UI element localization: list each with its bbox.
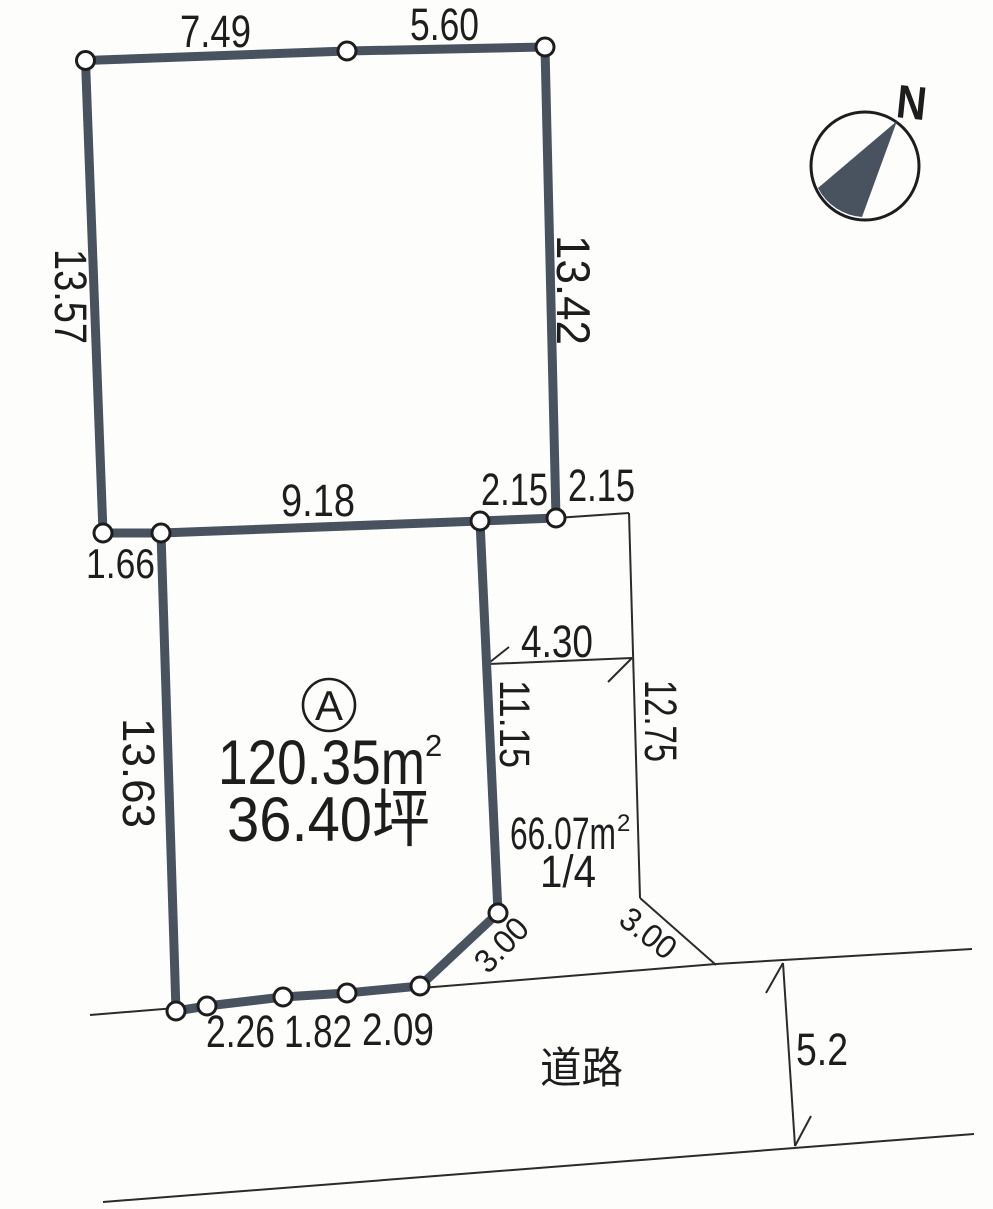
svg-text:1.82: 1.82 bbox=[284, 1006, 352, 1057]
svg-text:36.40坪: 36.40坪 bbox=[227, 785, 430, 855]
svg-text:13.57: 13.57 bbox=[45, 249, 96, 344]
svg-text:2: 2 bbox=[425, 728, 442, 763]
svg-text:2.15: 2.15 bbox=[481, 464, 548, 515]
svg-text:11.15: 11.15 bbox=[490, 680, 538, 768]
svg-text:5.60: 5.60 bbox=[410, 0, 479, 50]
svg-text:7.49: 7.49 bbox=[180, 6, 251, 57]
svg-text:13.63: 13.63 bbox=[113, 718, 164, 828]
svg-text:A: A bbox=[315, 682, 343, 729]
svg-text:2: 2 bbox=[617, 810, 630, 837]
svg-text:13.42: 13.42 bbox=[547, 235, 600, 345]
svg-text:道路: 道路 bbox=[540, 1045, 623, 1093]
svg-text:9.18: 9.18 bbox=[281, 475, 355, 526]
svg-text:4.30: 4.30 bbox=[521, 616, 593, 667]
svg-text:5.2: 5.2 bbox=[796, 1024, 848, 1075]
svg-text:12.75: 12.75 bbox=[635, 680, 686, 762]
svg-text:2.09: 2.09 bbox=[362, 1004, 434, 1055]
svg-text:1.66: 1.66 bbox=[86, 540, 155, 587]
svg-text:2.26: 2.26 bbox=[206, 1006, 275, 1057]
svg-text:N: N bbox=[894, 74, 929, 130]
svg-text:2.15: 2.15 bbox=[568, 460, 635, 511]
svg-text:1/4: 1/4 bbox=[540, 846, 596, 897]
